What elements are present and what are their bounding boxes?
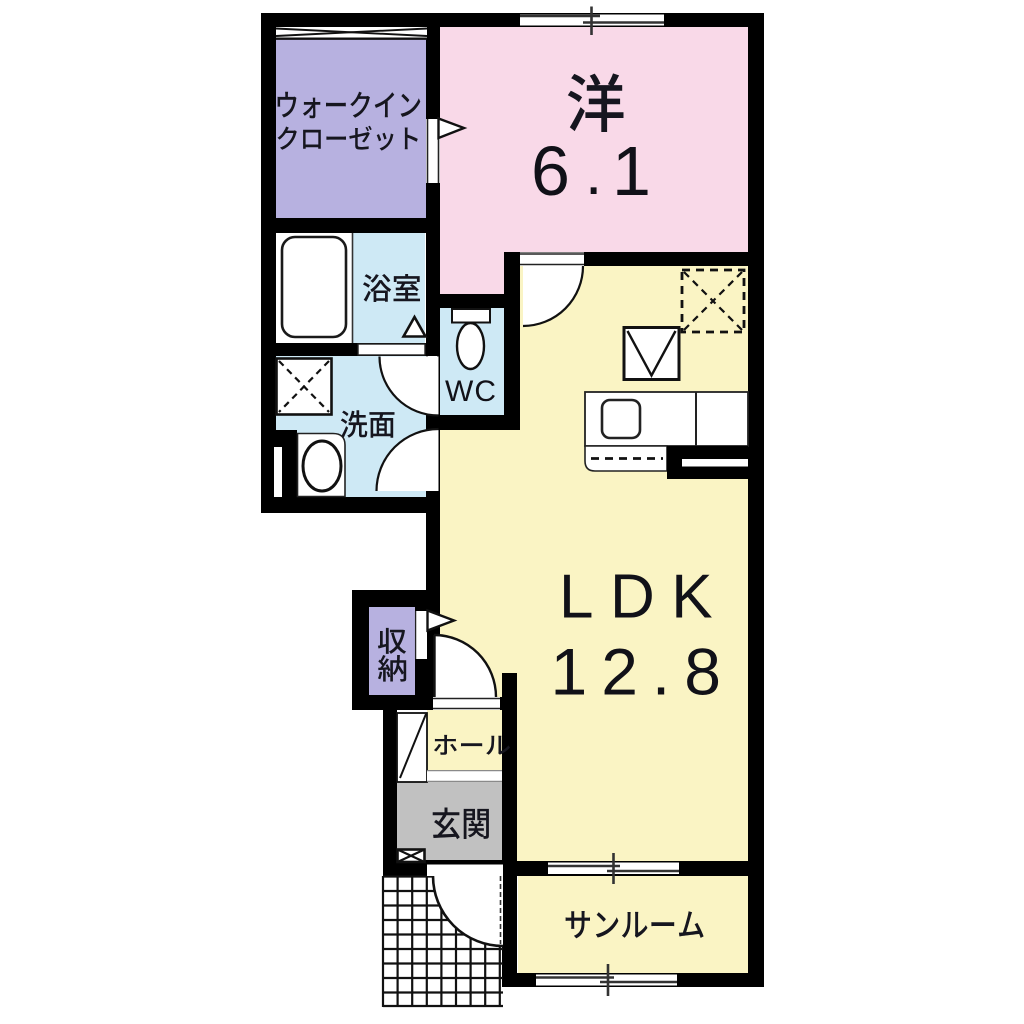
svg-text:12.8: 12.8 — [551, 635, 735, 709]
svg-text:1: 1 — [612, 132, 651, 210]
svg-text:WC: WC — [445, 375, 497, 408]
svg-text:.: . — [585, 139, 602, 208]
svg-text:6: 6 — [531, 132, 570, 210]
svg-text:LDK: LDK — [559, 563, 729, 632]
